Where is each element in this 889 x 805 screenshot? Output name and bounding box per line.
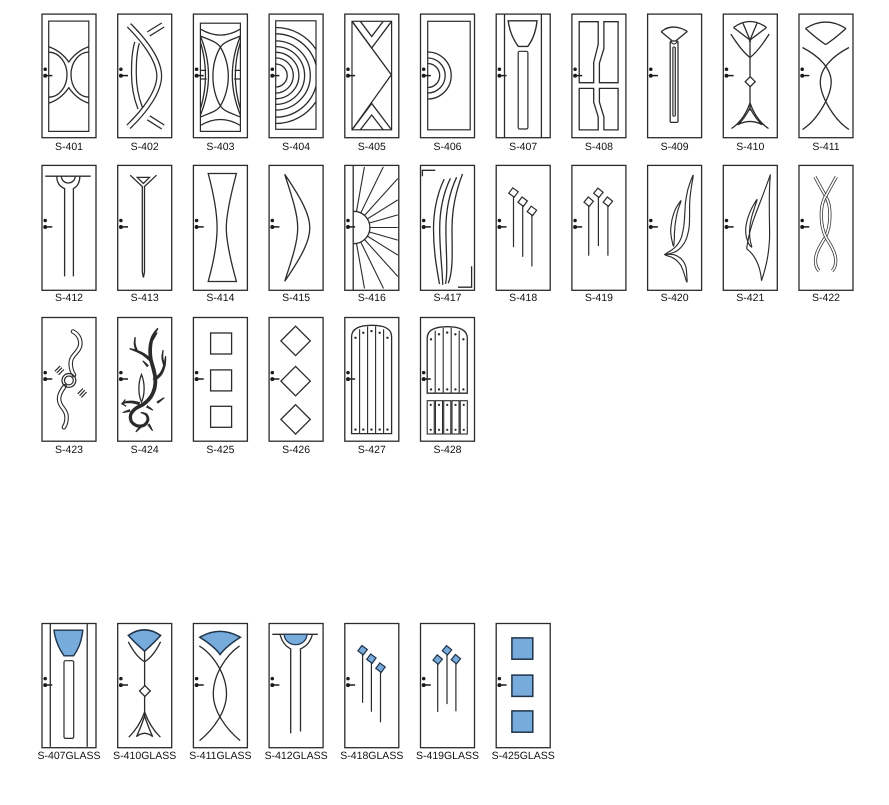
svg-text:S-404: S-404 xyxy=(282,141,310,153)
svg-text:S-426: S-426 xyxy=(282,444,310,456)
svg-text:S-416: S-416 xyxy=(358,292,386,304)
svg-text:S-405: S-405 xyxy=(358,141,386,153)
svg-text:S-413: S-413 xyxy=(131,292,159,304)
svg-text:S-424: S-424 xyxy=(131,444,159,456)
svg-text:S-423: S-423 xyxy=(55,444,83,456)
svg-text:S-420: S-420 xyxy=(661,292,689,304)
svg-text:S-407GLASS: S-407GLASS xyxy=(37,750,100,762)
svg-text:S-406: S-406 xyxy=(433,141,461,153)
svg-text:S-417: S-417 xyxy=(433,292,461,304)
svg-text:S-402: S-402 xyxy=(131,141,159,153)
svg-text:S-411GLASS: S-411GLASS xyxy=(189,750,251,762)
svg-text:S-409: S-409 xyxy=(661,141,689,153)
svg-text:S-422: S-422 xyxy=(812,292,840,304)
svg-text:S-412GLASS: S-412GLASS xyxy=(265,750,328,762)
svg-text:S-425GLASS: S-425GLASS xyxy=(492,750,555,762)
svg-text:S-419: S-419 xyxy=(585,292,613,304)
svg-text:S-408: S-408 xyxy=(585,141,613,153)
svg-text:S-401: S-401 xyxy=(55,141,83,153)
svg-text:S-410GLASS: S-410GLASS xyxy=(113,750,176,762)
svg-text:S-412: S-412 xyxy=(55,292,83,304)
svg-text:S-407: S-407 xyxy=(509,141,537,153)
svg-text:S-418: S-418 xyxy=(509,292,537,304)
svg-text:S-421: S-421 xyxy=(736,292,764,304)
svg-text:S-428: S-428 xyxy=(433,444,461,456)
svg-text:S-403: S-403 xyxy=(206,141,234,153)
svg-text:S-425: S-425 xyxy=(206,444,234,456)
svg-text:S-411: S-411 xyxy=(812,141,839,153)
svg-text:S-414: S-414 xyxy=(206,292,234,304)
svg-text:S-419GLASS: S-419GLASS xyxy=(416,750,479,762)
svg-text:S-415: S-415 xyxy=(282,292,310,304)
svg-text:S-418GLASS: S-418GLASS xyxy=(340,750,403,762)
svg-text:S-427: S-427 xyxy=(358,444,386,456)
svg-text:S-410: S-410 xyxy=(736,141,764,153)
